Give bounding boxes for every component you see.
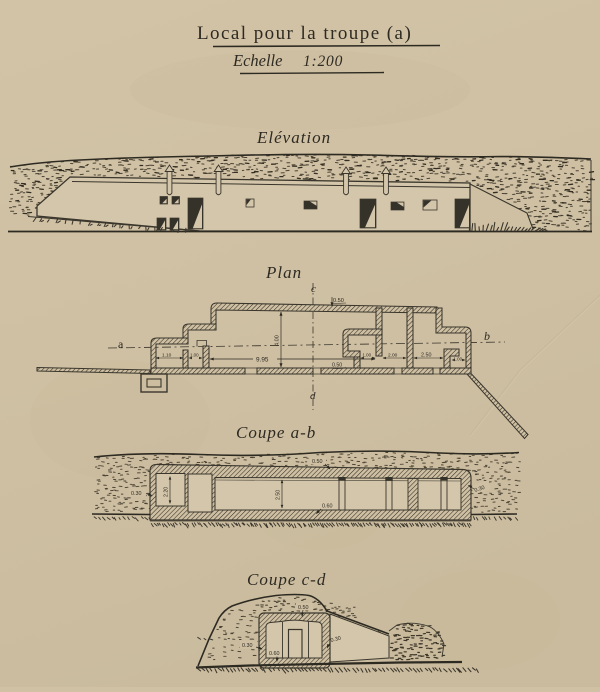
svg-text:0.60: 0.60	[322, 504, 333, 510]
svg-text:a: a	[118, 337, 124, 351]
svg-text:2.50: 2.50	[276, 490, 282, 500]
svg-text:1.00: 1.00	[363, 353, 372, 358]
svg-text:9.95: 9.95	[256, 357, 269, 364]
svg-text:2.50: 2.50	[421, 353, 432, 359]
svg-text:Elévation: Elévation	[256, 128, 331, 147]
svg-text:Coupe a-b: Coupe a-b	[236, 423, 316, 442]
svg-text:Local pour la troupe (a): Local pour la troupe (a)	[197, 23, 412, 44]
svg-text:2.20: 2.20	[164, 487, 170, 497]
svg-text:0.50: 0.50	[332, 363, 342, 369]
svg-text:c: c	[311, 283, 316, 295]
svg-text:0.30: 0.30	[242, 643, 253, 649]
svg-text:0.50: 0.50	[312, 459, 323, 465]
svg-text:d: d	[310, 390, 316, 402]
svg-text:4.00: 4.00	[275, 335, 281, 346]
svg-text:1.00: 1.00	[190, 353, 199, 358]
svg-text:b: b	[484, 329, 490, 343]
svg-text:0.30: 0.30	[131, 491, 142, 497]
svg-text:1.10: 1.10	[162, 353, 172, 359]
svg-text:Plan: Plan	[265, 263, 302, 282]
svg-text:2.00: 2.00	[388, 353, 398, 359]
svg-text:1.00: 1.00	[454, 357, 463, 362]
svg-text:Coupe c-d: Coupe c-d	[247, 570, 326, 589]
svg-text:0.60: 0.60	[269, 651, 280, 657]
